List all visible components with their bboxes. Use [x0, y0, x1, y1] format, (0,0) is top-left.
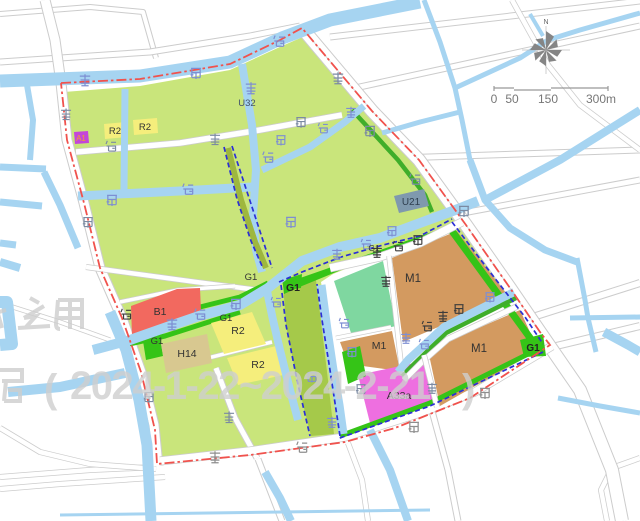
svg-text:R2: R2 — [139, 122, 151, 133]
svg-text:G1: G1 — [368, 243, 380, 253]
svg-text:G1: G1 — [220, 313, 233, 324]
svg-text:H14: H14 — [177, 348, 196, 360]
svg-text:): ) — [462, 367, 475, 411]
svg-text:U32: U32 — [238, 98, 255, 109]
svg-text:M1: M1 — [372, 340, 387, 352]
svg-text:50: 50 — [505, 92, 519, 106]
svg-text:R2: R2 — [231, 325, 245, 337]
svg-text:M1: M1 — [405, 273, 421, 285]
svg-text:G1: G1 — [151, 336, 164, 347]
svg-text:G1: G1 — [286, 282, 300, 294]
svg-text:0: 0 — [491, 92, 498, 106]
svg-text:N: N — [543, 19, 548, 26]
svg-text:B1: B1 — [154, 306, 167, 318]
svg-text:M1: M1 — [471, 343, 487, 355]
svg-text:G1: G1 — [526, 343, 540, 354]
svg-text:U21: U21 — [402, 197, 421, 208]
svg-text:G1: G1 — [245, 272, 258, 283]
svg-text:A1: A1 — [76, 134, 86, 143]
svg-text:150: 150 — [538, 92, 558, 106]
svg-text:(: ( — [44, 367, 58, 411]
svg-text:300m: 300m — [586, 92, 616, 106]
svg-text:2024-1-22~2024-2-21: 2024-1-22~2024-2-21 — [70, 364, 431, 408]
svg-text:R2: R2 — [109, 126, 121, 137]
